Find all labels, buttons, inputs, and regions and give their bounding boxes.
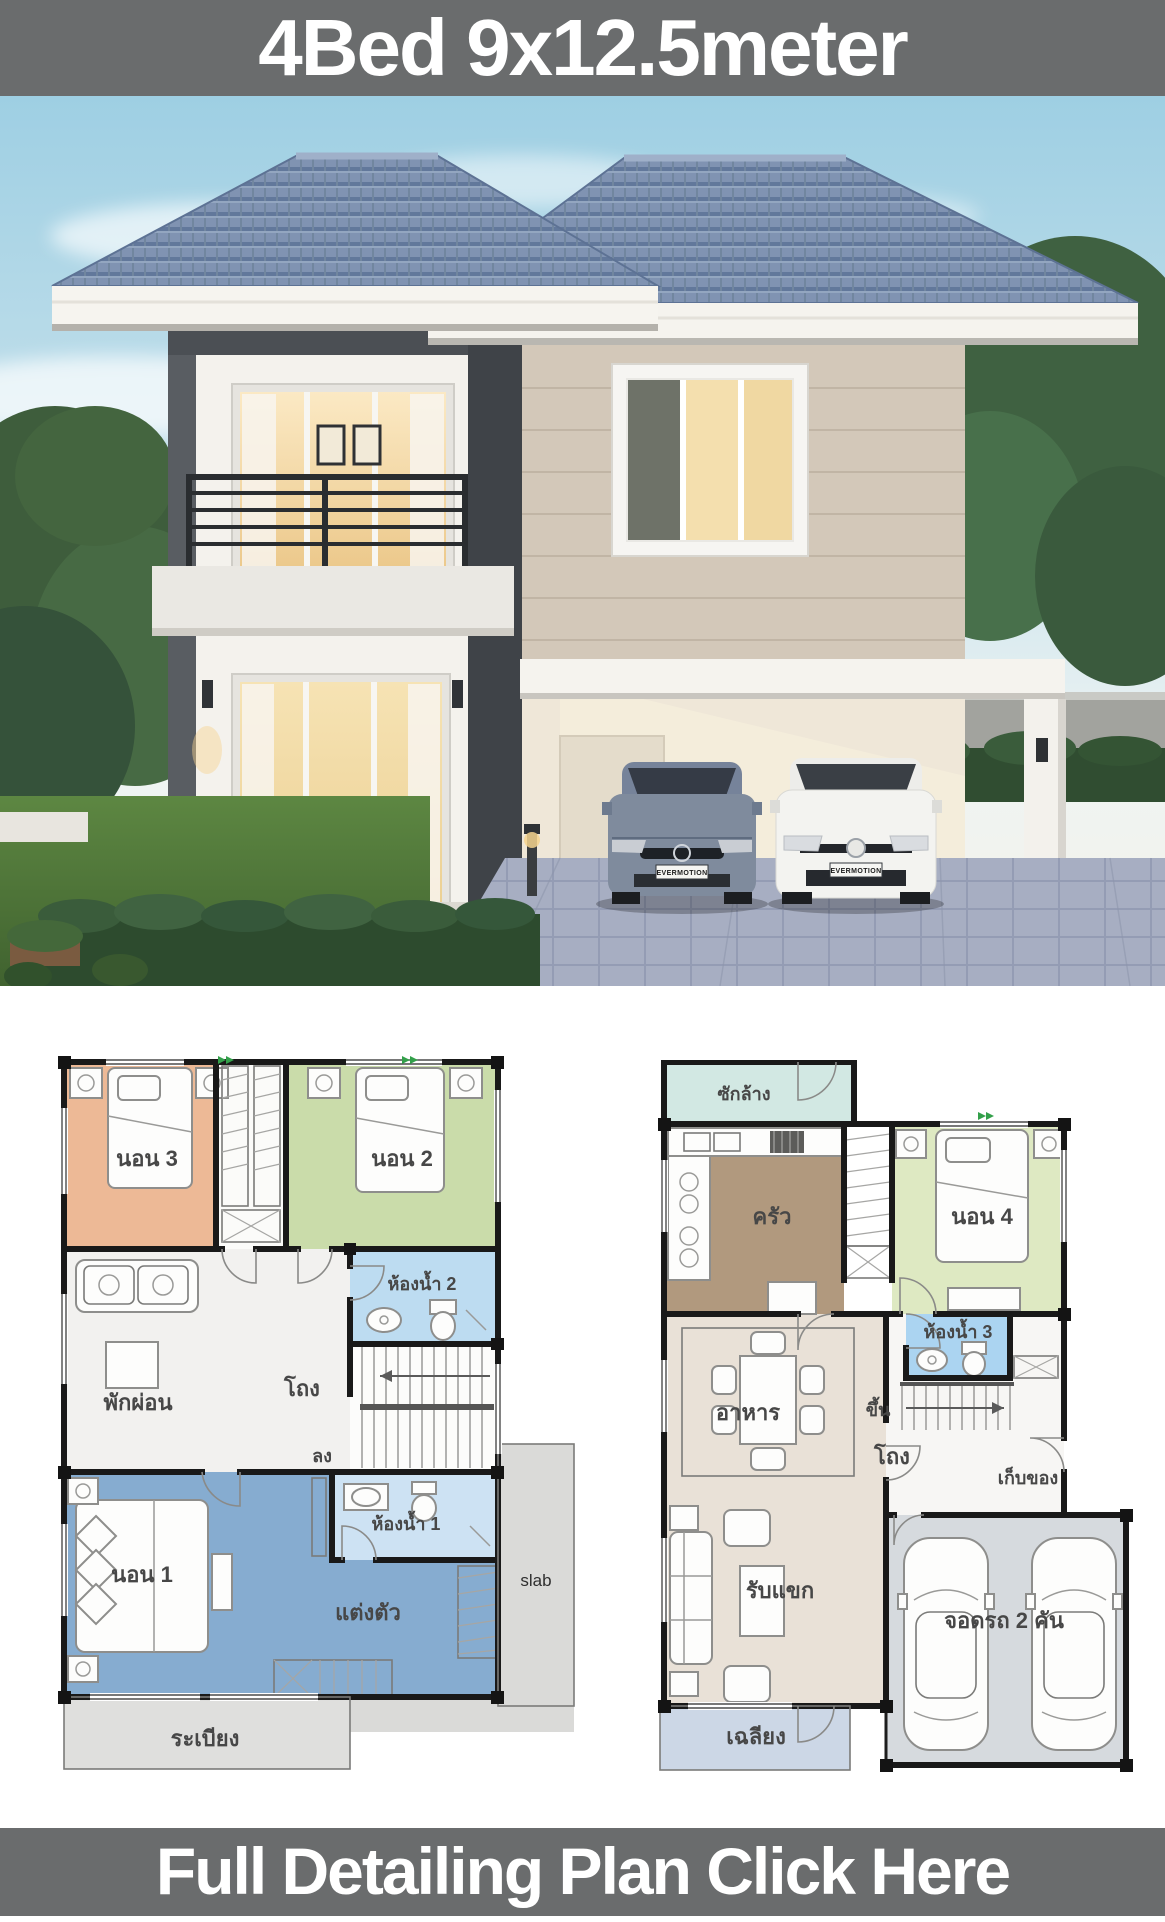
cta-label: Full Detailing Plan Click Here xyxy=(156,1834,1009,1908)
planter-wall xyxy=(0,812,88,842)
car-top-view xyxy=(1026,1538,1122,1750)
slab-strip xyxy=(350,1697,574,1732)
label-bathroom3: ห้องน้ำ 3 xyxy=(924,1318,993,1342)
wall-sconce xyxy=(202,680,213,708)
label-living: รับแขก xyxy=(746,1578,814,1603)
wall-sconce xyxy=(452,680,463,708)
label-bathroom2: ห้องน้ำ 2 xyxy=(388,1270,457,1294)
house-render: EVERMOTION EVERMOTION xyxy=(0,96,1165,986)
license-plate-text: EVERMOTION xyxy=(830,868,881,875)
bench-icon xyxy=(212,1554,232,1610)
kitchen-table xyxy=(768,1282,816,1314)
label-up: ขึ้น xyxy=(866,1396,891,1420)
label-bedroom4: นอน 4 xyxy=(951,1204,1013,1229)
label-dressing: แต่งตัว xyxy=(335,1600,401,1625)
label-bedroom3: นอน 3 xyxy=(116,1146,178,1171)
full-plan-cta[interactable]: Full Detailing Plan Click Here xyxy=(0,1828,1165,1916)
label-parking: จอดรถ 2 คัน xyxy=(944,1608,1064,1633)
house-plan-poster: 4Bed 9x12.5meter xyxy=(0,0,1165,1922)
house-right-wing xyxy=(520,344,965,679)
plan-second-floor: นอน 3 นอน 2 ห้องน้ำ 2 พักผ่อน โถง ลง นอน… xyxy=(50,1054,584,1779)
label-porch: เฉลียง xyxy=(726,1724,786,1749)
label-balcony: ระเบียง xyxy=(171,1726,240,1751)
label-bathroom1: ห้องน้ำ 1 xyxy=(372,1510,441,1534)
car-logo xyxy=(847,839,865,857)
picture-frame xyxy=(354,426,380,464)
floor-plans: นอน 3 นอน 2 ห้องน้ำ 2 พักผ่อน โถง ลง นอน… xyxy=(0,986,1165,1828)
label-down: ลง xyxy=(312,1446,332,1466)
label-relax: พักผ่อน xyxy=(104,1390,173,1415)
bedroom-window xyxy=(612,364,808,556)
column-light xyxy=(1036,738,1048,762)
license-plate-text: EVERMOTION xyxy=(656,870,707,877)
label-storage: เก็บของ xyxy=(998,1466,1058,1488)
label-hall: โถง xyxy=(873,1443,910,1469)
picture-frame xyxy=(318,426,344,464)
page-title: 4Bed 9x12.5meter xyxy=(258,3,906,92)
balcony-parapet xyxy=(152,566,514,636)
car-top-view xyxy=(898,1538,994,1750)
plan-first-floor: ซักล้าง ครัว นอน 4 ห้องน้ำ 3 อาหาร ขึ้น … xyxy=(648,1060,1140,1775)
label-bedroom2: นอน 2 xyxy=(371,1146,433,1171)
table-icon xyxy=(106,1342,158,1388)
label-kitchen: ครัว xyxy=(753,1204,792,1229)
car-white: EVERMOTION xyxy=(768,758,944,914)
dresser-icon xyxy=(948,1288,1020,1310)
label-dining: อาหาร xyxy=(716,1400,780,1425)
label-bedroom1: นอน 1 xyxy=(111,1562,173,1587)
label-hall: โถง xyxy=(283,1375,320,1401)
label-laundry: ซักล้าง xyxy=(717,1084,770,1104)
closet-icon xyxy=(846,1126,890,1278)
title-banner: 4Bed 9x12.5meter xyxy=(0,0,1165,96)
label-slab: slab xyxy=(520,1571,551,1590)
plan-markers xyxy=(978,1112,994,1120)
